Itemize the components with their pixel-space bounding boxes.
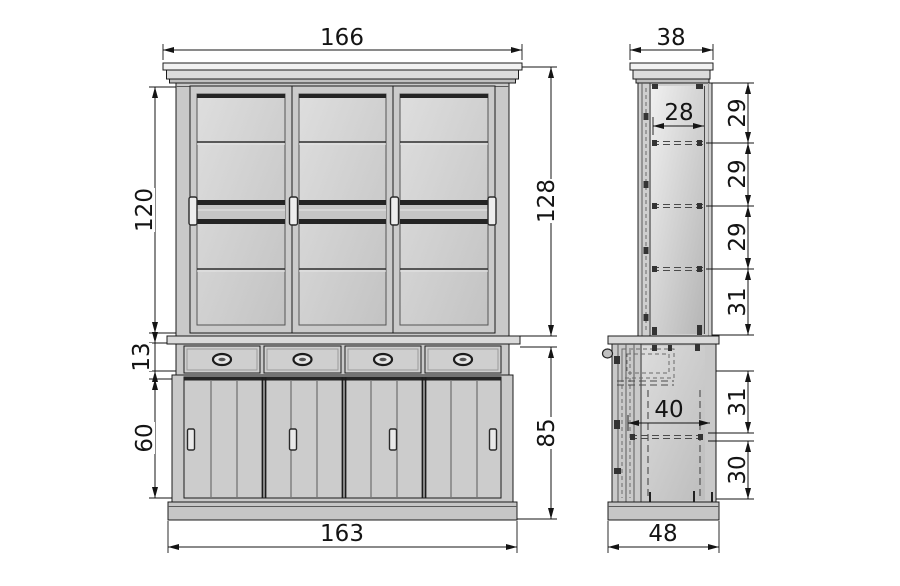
dim-label-wrap: 120	[132, 188, 158, 232]
shelf-support	[697, 140, 702, 146]
hardware-mark	[696, 84, 703, 89]
drawer-4	[425, 346, 501, 373]
side-cornice-lip	[636, 79, 709, 83]
glass-door-1-top-shadow	[197, 94, 285, 98]
door-1-rail-shadow-top	[197, 200, 285, 205]
dim-lower-door-height: 60	[132, 379, 172, 498]
glass-door-3	[393, 86, 495, 333]
drawer-2	[264, 346, 341, 373]
hardware-mark	[668, 345, 672, 351]
door-3-rail-shadow-top	[400, 200, 488, 205]
front-plinth-board	[168, 502, 517, 520]
glass-door-3-top-shadow	[400, 94, 488, 98]
door-handle	[391, 197, 399, 225]
shelf-support	[652, 140, 657, 146]
door-handle	[490, 429, 497, 450]
side-cornice	[630, 63, 713, 83]
front-cornice	[163, 63, 522, 83]
hardware-mark	[644, 181, 649, 188]
side-plinth-board	[608, 502, 719, 520]
front-hutch	[176, 83, 509, 336]
door-2-rail-shadow-top	[299, 200, 386, 205]
front-cornice-lip	[170, 79, 516, 83]
dim-label-bottom-width: 163	[320, 521, 364, 547]
shelf-support	[630, 434, 635, 440]
side-cornice-top	[630, 63, 713, 70]
dim-bottom-depth: 48	[608, 521, 719, 553]
hardware-mark	[644, 113, 649, 120]
shelf-support	[697, 266, 702, 272]
drawer-handle-center	[459, 358, 466, 362]
dim-label-shelf-gap-1: 29	[725, 98, 751, 127]
dim-label-inner-depth: 28	[664, 100, 693, 126]
front-cornice-top	[163, 63, 522, 70]
dim-bottom-width: 163	[168, 521, 517, 553]
dim-label-shelf-gap-2: 29	[725, 159, 751, 188]
hardware-mark	[652, 327, 657, 335]
dim-label-hutch-height: 128	[534, 179, 560, 223]
door-handle	[488, 197, 496, 225]
drawer-handle-center	[218, 358, 225, 362]
door-handle	[390, 429, 397, 450]
side-plinth	[608, 502, 719, 520]
dim-label-shelf-gap-4: 31	[725, 287, 751, 316]
dim-label-door-height: 120	[132, 188, 158, 232]
dim-shelf-gaps: 29 29 29 31	[706, 83, 754, 335]
dim-hutch-height: 128	[520, 67, 560, 336]
side-counter	[608, 336, 719, 344]
dim-door-height: 120	[132, 87, 176, 333]
shelf-support	[652, 203, 657, 209]
front-counter	[167, 336, 520, 344]
dim-label-wrap: 128	[534, 179, 560, 223]
front-plinth	[168, 502, 517, 520]
drawer-knob-side	[603, 349, 613, 358]
dim-top-width: 166	[163, 25, 522, 60]
door-3-rail-shadow-bottom	[400, 219, 488, 224]
dim-label-top-depth: 38	[656, 25, 685, 51]
front-base-cabinet	[172, 375, 513, 502]
glass-door-2-top-shadow	[299, 94, 386, 98]
glass-door-1	[190, 86, 292, 333]
technical-drawing-page: 166 120 13	[0, 0, 900, 586]
door-handle	[189, 197, 197, 225]
front-drawer-row	[176, 344, 509, 375]
hardware-mark	[652, 84, 658, 89]
drawer-handle-center	[379, 358, 386, 362]
shelf-support	[697, 203, 702, 209]
dim-label-drawer-height: 13	[129, 342, 155, 371]
door-handle	[290, 429, 297, 450]
hardware-mark	[644, 247, 649, 254]
drawer-3	[345, 346, 421, 373]
glass-door-2	[292, 86, 393, 333]
shelf-support	[652, 266, 657, 272]
drawer-handle-center	[299, 358, 306, 362]
front-view	[163, 63, 522, 520]
dim-label-base-height: 85	[534, 418, 560, 447]
dim-label-bottom-depth: 48	[648, 521, 677, 547]
dim-top-depth: 38	[630, 25, 713, 60]
dim-label-top-width: 166	[320, 25, 364, 51]
dim-label-wrap: 60	[132, 422, 158, 454]
hardware-mark	[695, 344, 700, 351]
door-handle	[290, 197, 298, 225]
hardware-mark	[644, 314, 649, 321]
hardware-mark	[614, 420, 620, 429]
cabinet-technical-drawing: 166 120 13	[0, 0, 900, 586]
dim-label-wrap: 85	[534, 417, 560, 449]
dim-label-lower-door-height: 60	[132, 423, 158, 452]
side-view	[603, 63, 720, 520]
dim-label-shelf-gap-3: 29	[725, 222, 751, 251]
shelf-support	[698, 434, 703, 440]
side-cornice-mid	[633, 70, 710, 79]
hardware-mark	[697, 325, 702, 335]
drawer-1	[184, 346, 260, 373]
dim-label-base-gap-lower: 30	[725, 455, 751, 484]
hardware-mark	[652, 345, 657, 351]
door-1-rail-shadow-bottom	[197, 219, 285, 224]
dim-label-wrap: 13	[129, 342, 155, 371]
dim-label-base-gap-upper: 31	[725, 387, 751, 416]
door-2-rail-shadow-bottom	[299, 219, 386, 224]
front-cornice-mid	[167, 70, 519, 79]
dim-base-height: 85	[517, 347, 560, 519]
hardware-mark	[614, 468, 621, 474]
hardware-mark	[614, 356, 620, 364]
dim-label-base-inner-depth: 40	[654, 397, 683, 423]
door-handle	[188, 429, 195, 450]
